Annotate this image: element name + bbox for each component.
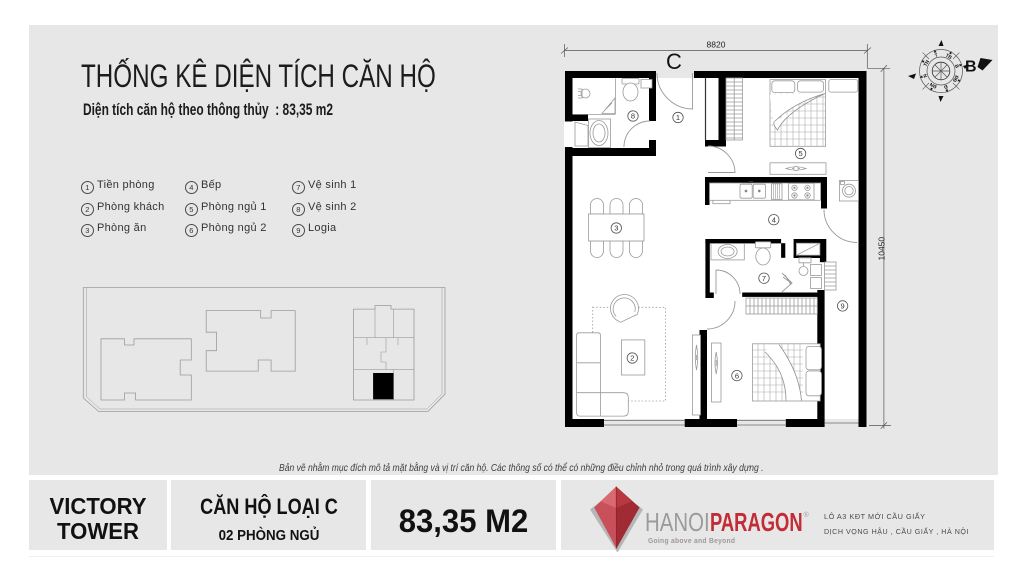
svg-text:N: N bbox=[922, 73, 929, 79]
svg-text:10450: 10450 bbox=[877, 237, 887, 261]
svg-text:ĐN: ĐN bbox=[929, 81, 938, 90]
svg-text:2: 2 bbox=[630, 354, 634, 363]
svg-text:9: 9 bbox=[841, 302, 845, 311]
svg-text:4: 4 bbox=[772, 215, 776, 224]
svg-text:Đ: Đ bbox=[943, 83, 949, 90]
svg-text:T: T bbox=[934, 52, 939, 59]
svg-text:5: 5 bbox=[799, 149, 803, 158]
svg-text:TB: TB bbox=[944, 53, 953, 62]
svg-text:TN: TN bbox=[923, 59, 932, 68]
svg-text:B: B bbox=[965, 59, 977, 76]
svg-text:7: 7 bbox=[762, 274, 766, 283]
svg-text:6: 6 bbox=[735, 371, 739, 380]
svg-text:1: 1 bbox=[676, 113, 680, 122]
svg-text:B: B bbox=[953, 64, 960, 70]
svg-text:C: C bbox=[666, 49, 682, 74]
svg-text:3: 3 bbox=[614, 224, 618, 233]
svg-text:8: 8 bbox=[631, 112, 635, 121]
svg-text:8820: 8820 bbox=[707, 40, 726, 50]
svg-text:ĐB: ĐB bbox=[951, 74, 960, 83]
